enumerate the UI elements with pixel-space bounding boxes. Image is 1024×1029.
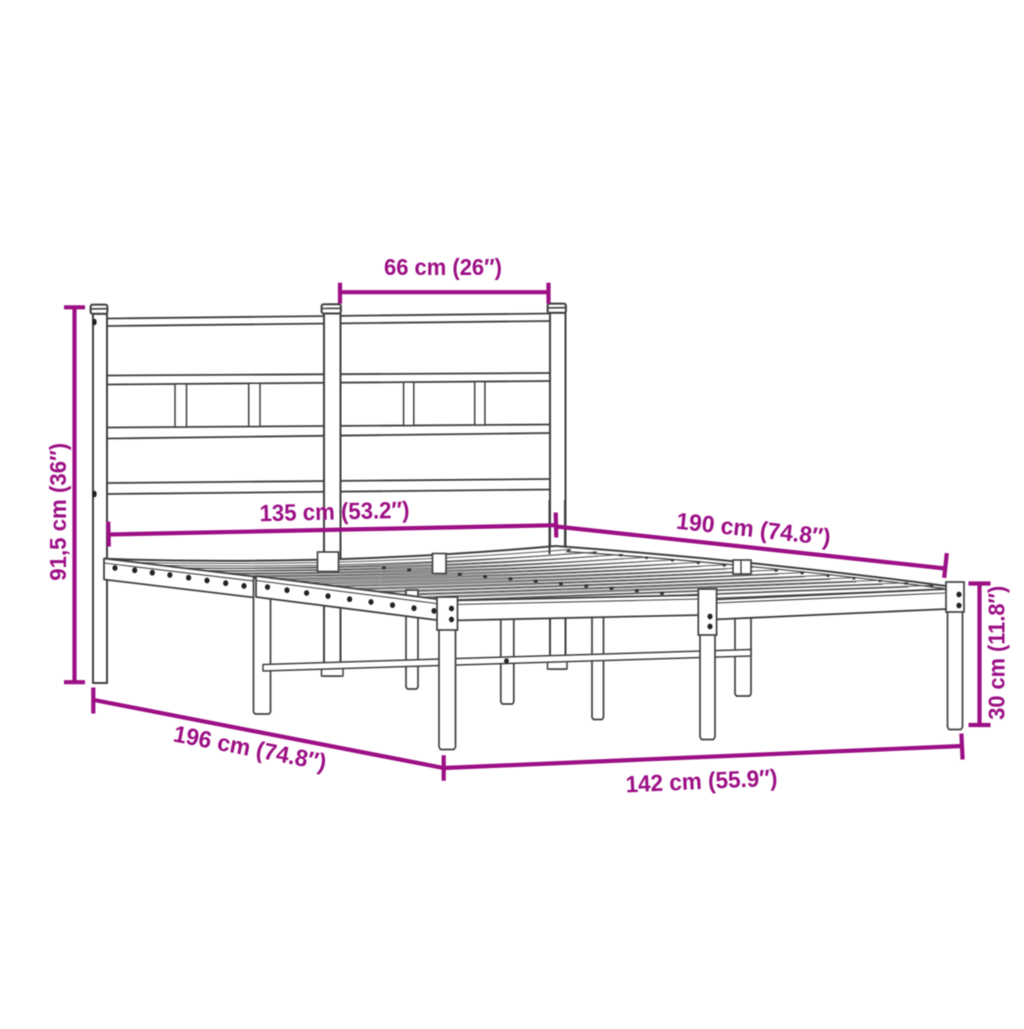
svg-text:135 cm (53.2″): 135 cm (53.2″) bbox=[259, 497, 410, 527]
svg-text:66 cm (26″): 66 cm (26″) bbox=[384, 254, 502, 280]
svg-text:30 cm (11.8″): 30 cm (11.8″) bbox=[984, 586, 1010, 720]
svg-text:91,5 cm (36″): 91,5 cm (36″) bbox=[45, 443, 71, 581]
